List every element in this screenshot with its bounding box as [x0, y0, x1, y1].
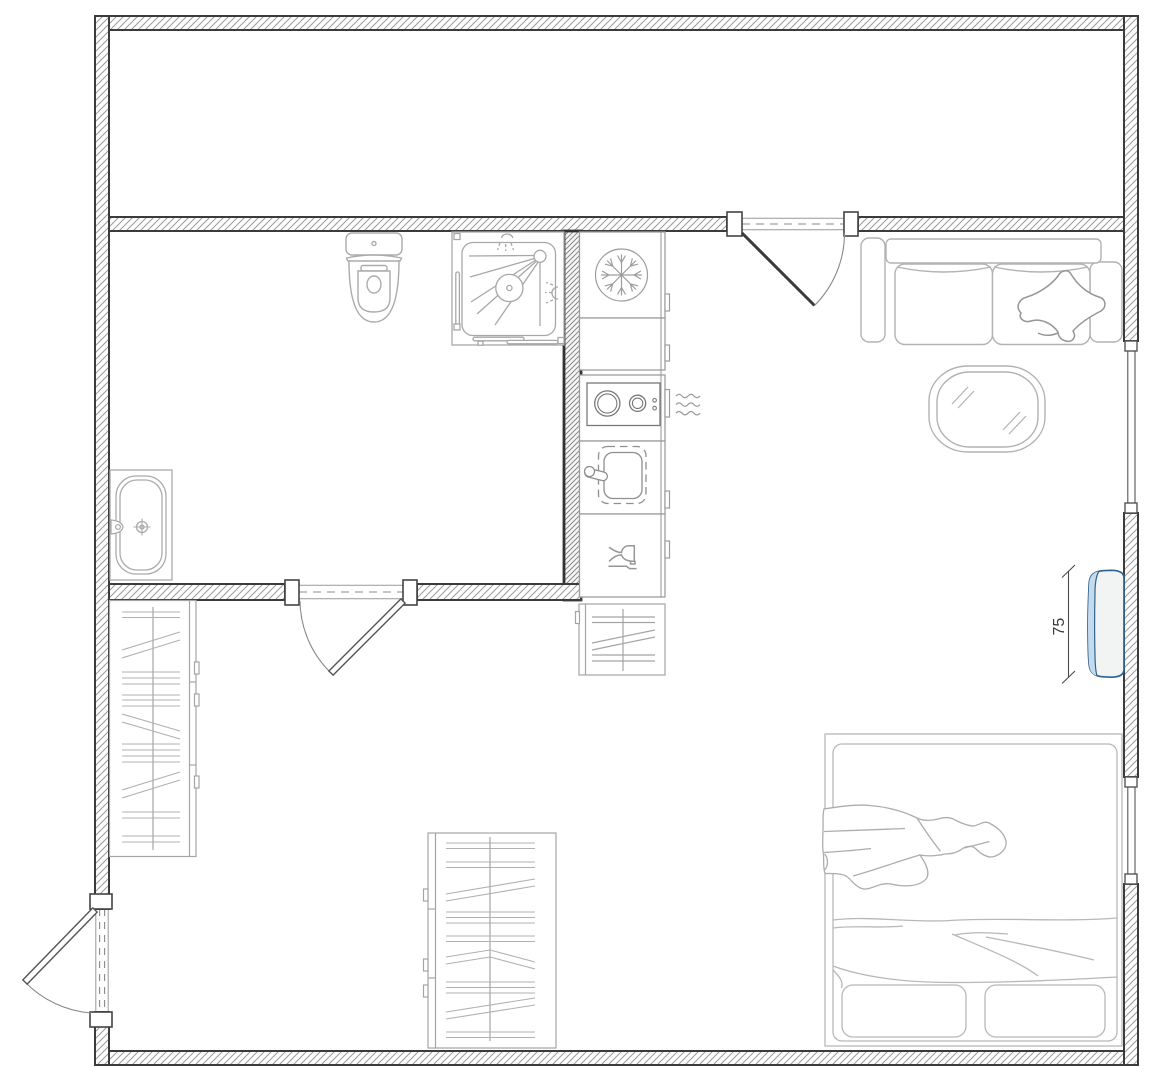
svg-text:75: 75 — [1051, 618, 1068, 636]
